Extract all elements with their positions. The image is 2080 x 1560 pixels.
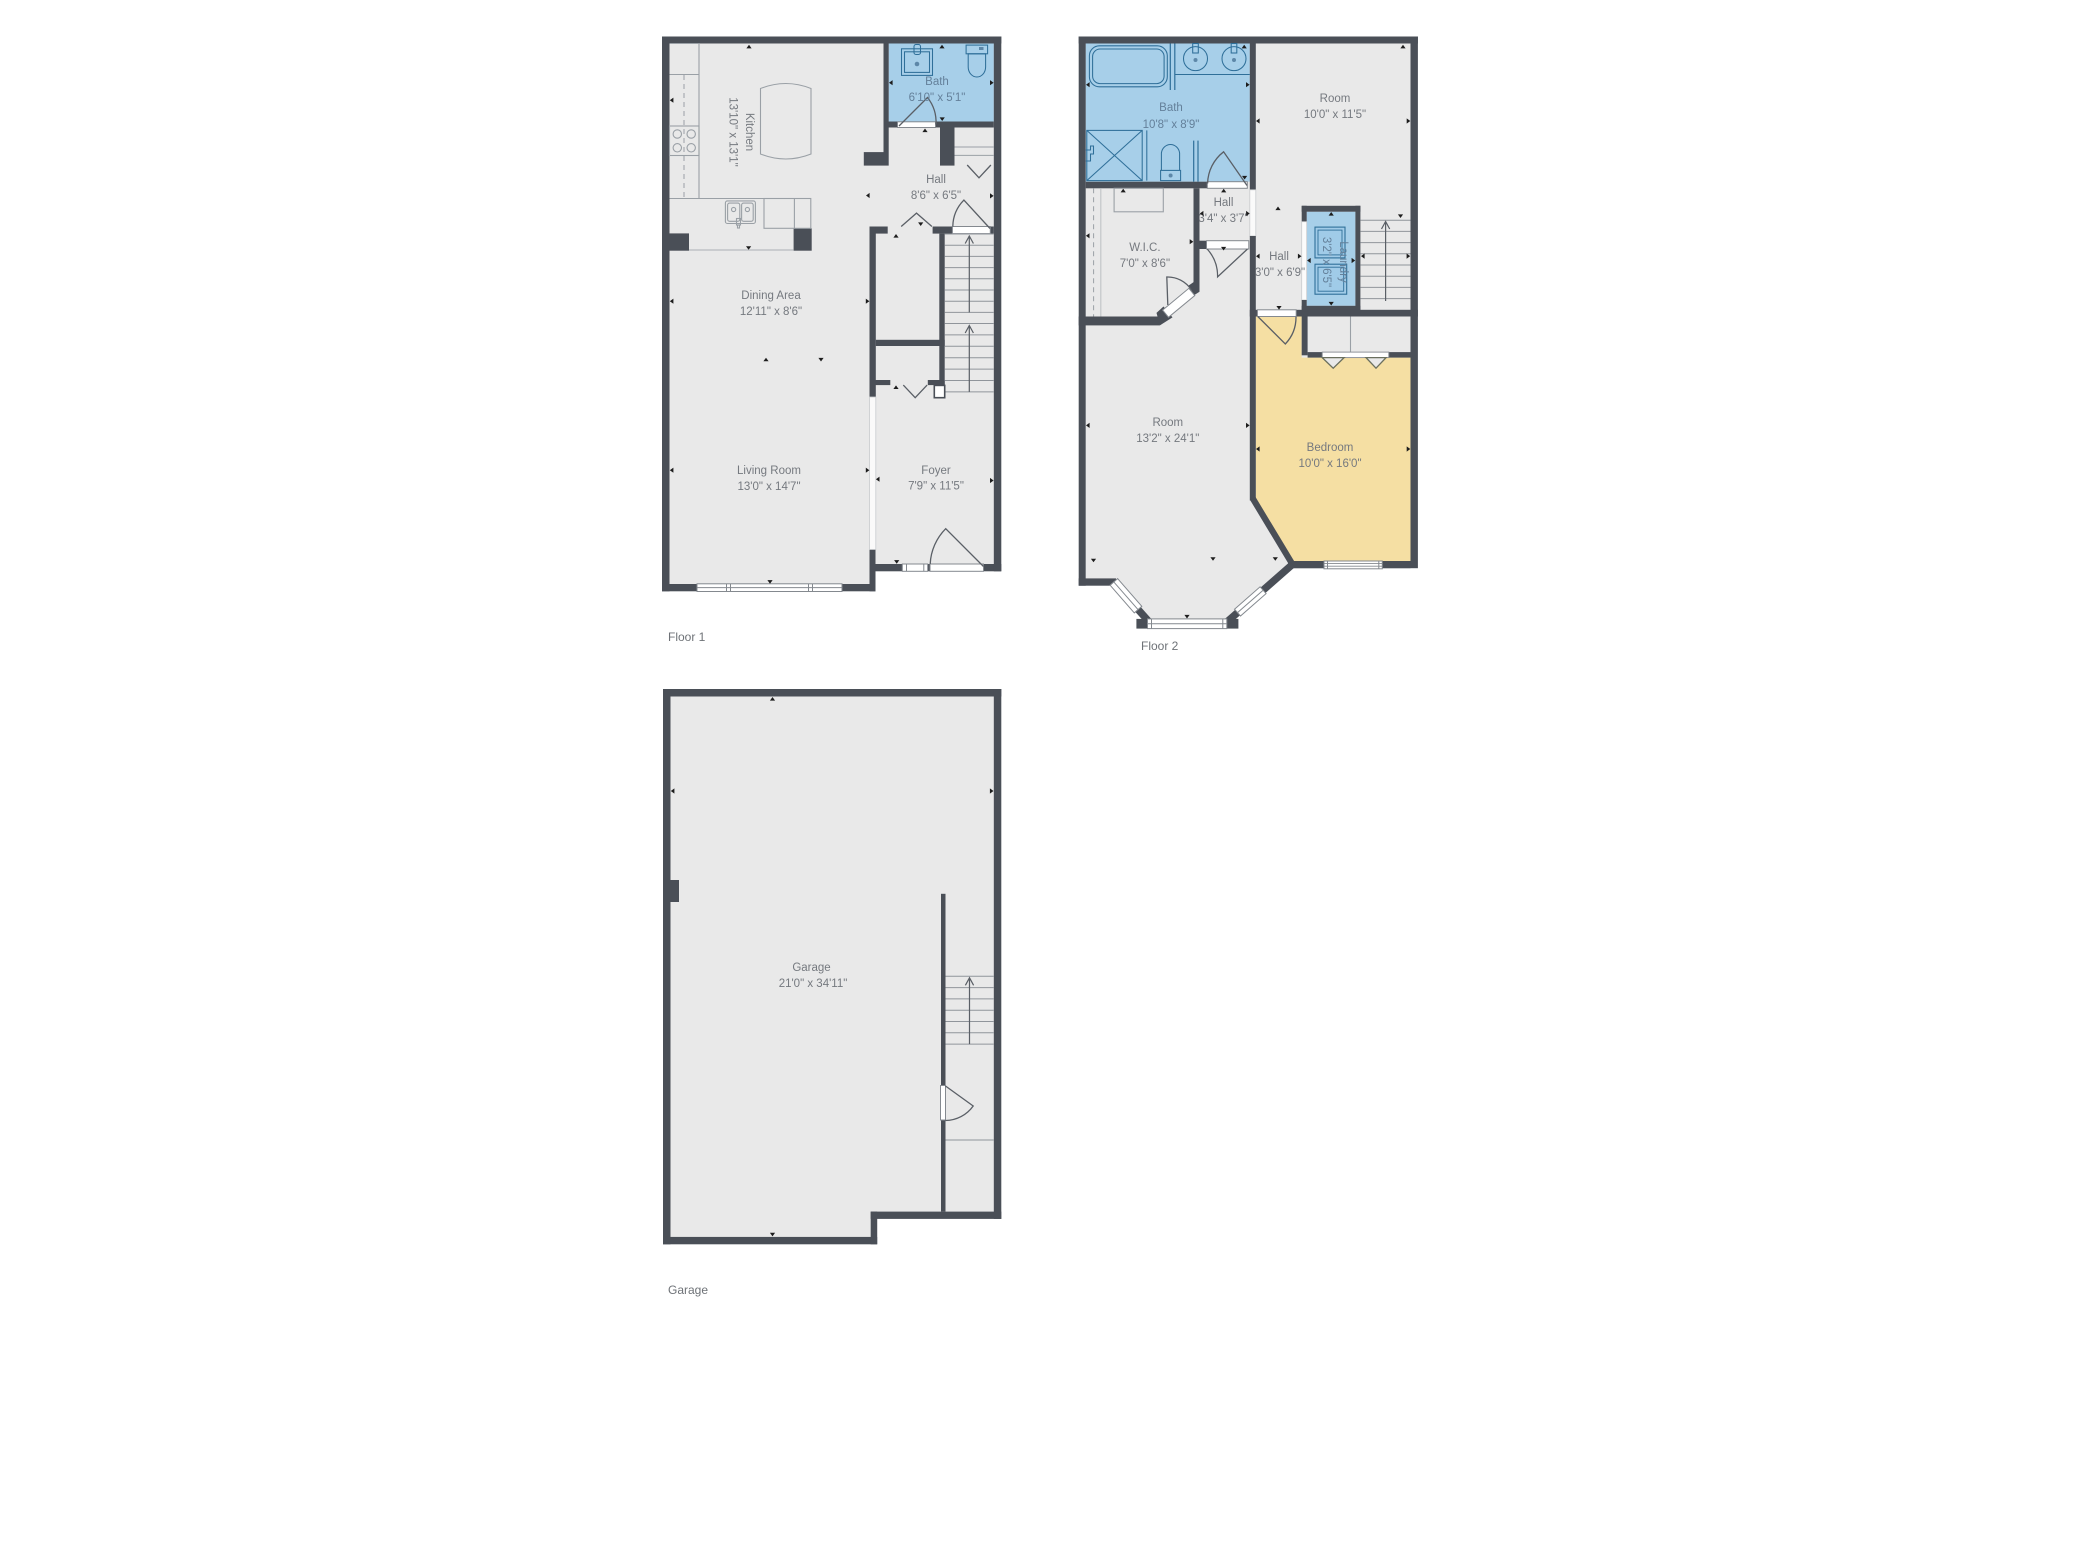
svg-text:Bedroom: Bedroom [1307,442,1354,454]
svg-text:3'4" x 3'7": 3'4" x 3'7" [1198,213,1248,225]
svg-text:Floor 1: Floor 1 [668,630,706,644]
svg-text:13'2" x 24'1": 13'2" x 24'1" [1136,433,1199,445]
svg-text:Floor 2: Floor 2 [1141,639,1179,653]
svg-text:10'0" x 16'0": 10'0" x 16'0" [1298,458,1361,470]
svg-text:12'11" x 8'6": 12'11" x 8'6" [740,306,802,318]
svg-text:Room: Room [1152,417,1183,429]
svg-text:7'0" x 8'6": 7'0" x 8'6" [1120,258,1170,270]
svg-text:Room: Room [1320,93,1351,105]
svg-text:6'10" x 5'1": 6'10" x 5'1" [909,92,966,104]
svg-text:8'6" x 6'5": 8'6" x 6'5" [911,190,961,202]
svg-text:Garage: Garage [792,962,830,974]
svg-text:7'9" x 11'5": 7'9" x 11'5" [908,481,964,493]
svg-text:Living Room: Living Room [737,465,801,477]
svg-text:W.I.C.: W.I.C. [1129,242,1160,254]
svg-text:Hall: Hall [1214,197,1234,209]
svg-text:Foyer: Foyer [921,465,951,477]
svg-text:21'0" x 34'11": 21'0" x 34'11" [779,978,848,990]
svg-text:3'0" x 6'9": 3'0" x 6'9" [1255,267,1305,279]
svg-text:Hall: Hall [926,174,946,186]
svg-text:Dining Area: Dining Area [741,290,801,302]
svg-text:13'0" x 14'7": 13'0" x 14'7" [737,481,800,493]
svg-text:10'0" x 11'5": 10'0" x 11'5" [1304,109,1366,121]
svg-text:Bath: Bath [1159,102,1183,114]
svg-text:10'8" x 8'9": 10'8" x 8'9" [1143,119,1200,131]
svg-text:Garage: Garage [668,1283,708,1297]
svg-text:Hall: Hall [1269,251,1289,263]
svg-text:Bath: Bath [925,76,949,88]
